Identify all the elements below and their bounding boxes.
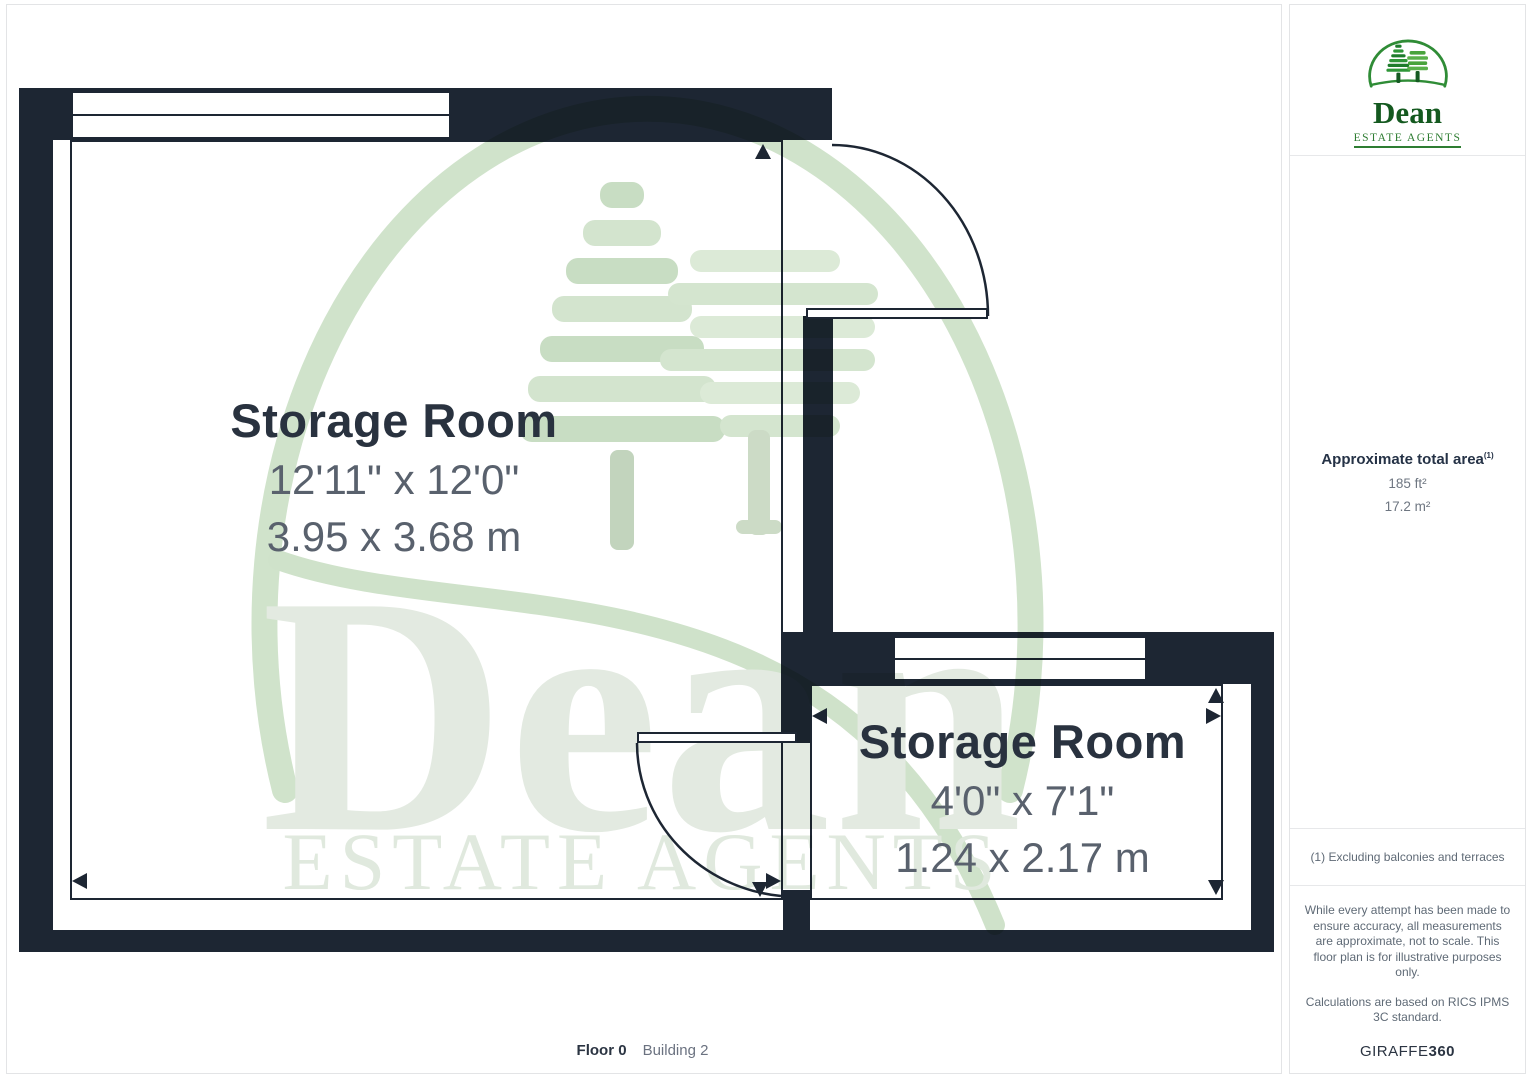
measure-arrow-up-icon [1208, 688, 1224, 703]
total-area-heading: Approximate total area(1) [1290, 451, 1525, 468]
door-leaf-top [806, 308, 988, 319]
brand-giraffe: GIRAFFE [1360, 1043, 1429, 1060]
wall-interior-lower [783, 890, 810, 932]
room-name: Storage Room [800, 712, 1245, 772]
window-top [71, 91, 451, 139]
measure-arrow-left-icon [72, 873, 87, 889]
measure-arrow-down-icon [752, 882, 768, 897]
window-pane-divider [894, 658, 1146, 660]
wall-left [19, 88, 53, 952]
agency-tagline: ESTATE AGENTS [1354, 132, 1462, 148]
room-dims-metric: 1.24 x 2.17 m [800, 829, 1245, 886]
building-number: Building 2 [643, 1042, 709, 1059]
sidebar-divider [1290, 155, 1525, 156]
disclaimer-block: While every attempt has been made to ens… [1290, 903, 1525, 1060]
agency-logo: Dean ESTATE AGENTS [1290, 27, 1525, 148]
giraffe360-brand: GIRAFFE360 [1290, 1043, 1525, 1060]
info-sidebar: Dean ESTATE AGENTS Approximate total are… [1289, 4, 1526, 1074]
footnote-text: (1) Excluding balconies and terraces [1310, 850, 1504, 864]
room-dims-imperial: 12'11" x 12'0" [154, 451, 634, 508]
disclaimer-accuracy: While every attempt has been made to ens… [1304, 903, 1512, 981]
room-label-small: Storage Room 4'0" x 7'1" 1.24 x 2.17 m [800, 712, 1245, 886]
total-area-heading-text: Approximate total area [1321, 451, 1484, 468]
window-pane-divider [72, 114, 450, 116]
window-room2 [893, 636, 1147, 681]
brand-360: 360 [1428, 1043, 1455, 1060]
room-dims-metric: 3.95 x 3.68 m [154, 508, 634, 565]
total-area-footnote-ref: (1) [1484, 451, 1494, 460]
wall-bottom [19, 930, 1274, 952]
measure-arrow-right-icon [766, 873, 781, 889]
room-name: Storage Room [154, 391, 634, 451]
agency-name: Dean [1290, 98, 1525, 128]
sidebar-divider [1290, 885, 1525, 886]
total-area-imperial: 185 ft² [1290, 476, 1525, 491]
floor-caption: Floor 0Building 2 [0, 1042, 1285, 1059]
wall-room2-right [1251, 632, 1274, 952]
floor-number: Floor 0 [577, 1042, 627, 1059]
room-label-large: Storage Room 12'11" x 12'0" 3.95 x 3.68 … [154, 391, 634, 565]
footnote-block: (1) Excluding balconies and terraces [1290, 828, 1525, 885]
disclaimer-standard: Calculations are based on RICS IPMS 3C s… [1304, 995, 1512, 1026]
agency-tree-icon [1349, 27, 1467, 91]
room-dims-imperial: 4'0" x 7'1" [800, 772, 1245, 829]
total-area-block: Approximate total area(1) 185 ft² 17.2 m… [1290, 451, 1525, 514]
door-leaf-room2 [637, 732, 797, 743]
wall-interior-upper [803, 316, 833, 637]
measure-arrow-up-icon [755, 144, 771, 159]
total-area-metric: 17.2 m² [1290, 499, 1525, 514]
